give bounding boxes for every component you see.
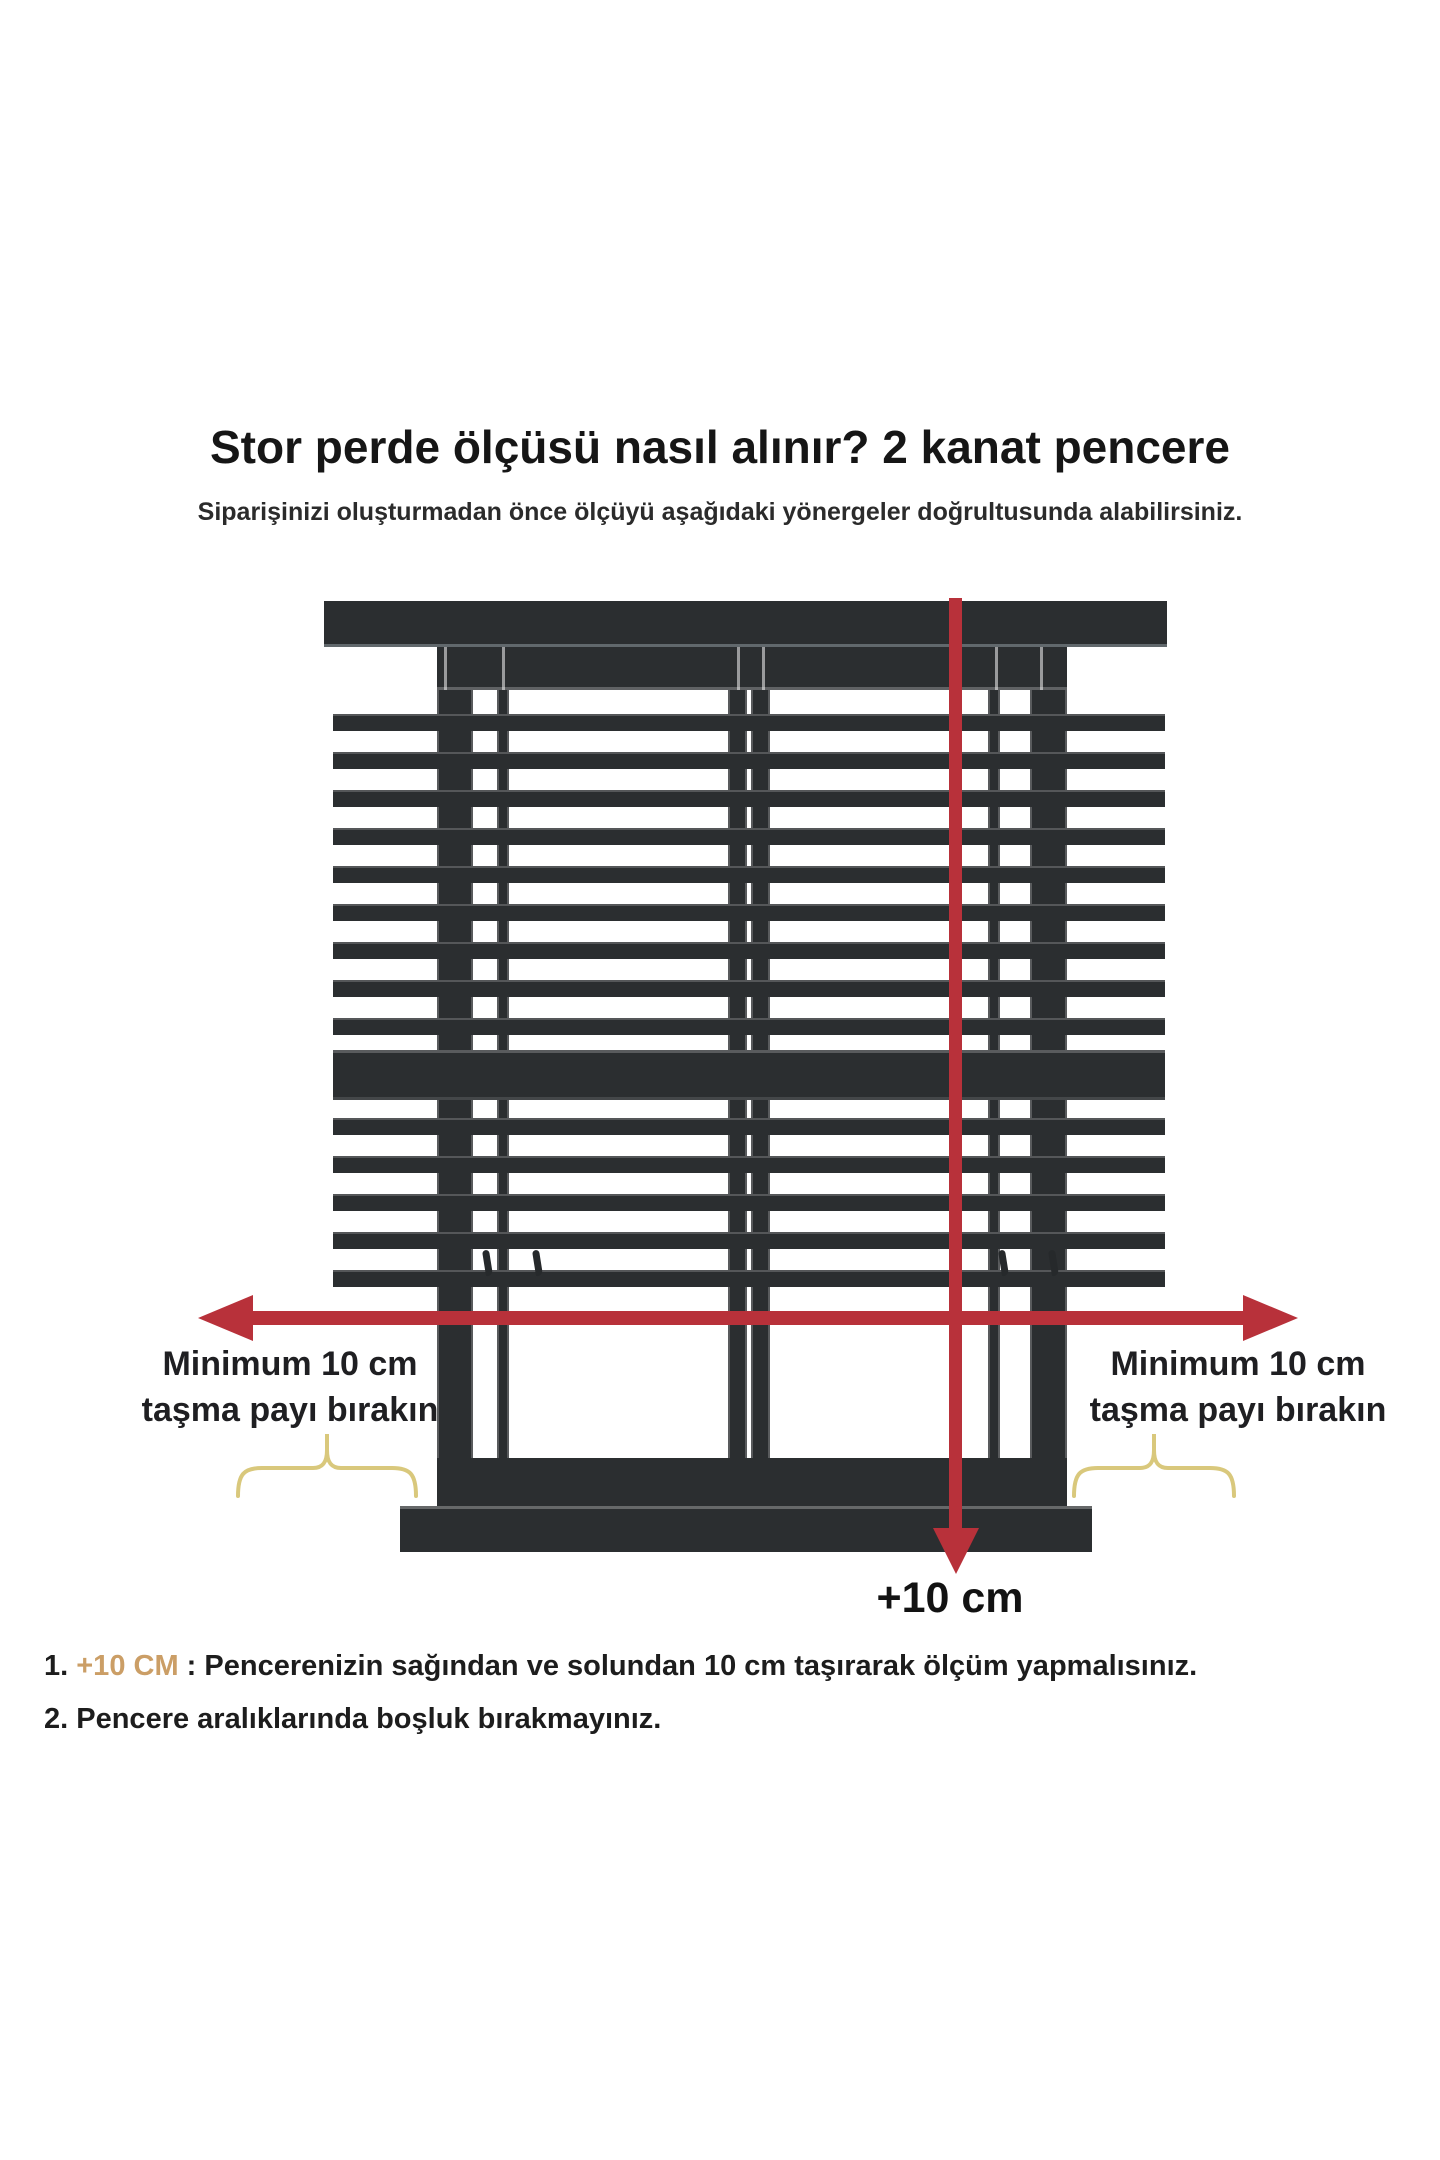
vertical-measure-arrow [949, 598, 962, 1528]
bottom-arrow-label: +10 cm [855, 1574, 1045, 1623]
blind-slat [333, 980, 1165, 997]
left-overhang-label-line2: taşma payı bırakın [115, 1387, 465, 1433]
down-arrowhead-icon [933, 1528, 979, 1574]
right-overhang-label: Minimum 10 cm taşma payı bırakın [1063, 1341, 1413, 1433]
frame-seam [762, 646, 765, 690]
instruction-item-1: 1. +10 CM : Pencerenizin sağından ve sol… [44, 1640, 1414, 1693]
blind-slat [333, 714, 1165, 731]
blind-merged-slat-band [333, 1050, 1165, 1100]
left-overhang-brace-icon [236, 1428, 420, 1500]
left-arrowhead-icon [198, 1295, 253, 1341]
frame-seam [502, 646, 505, 690]
blind-slat [333, 1018, 1165, 1035]
instruction-2-number: 2. [44, 1703, 68, 1735]
blind-slat [333, 1156, 1165, 1173]
window-sill [400, 1506, 1092, 1552]
blind-headrail [324, 601, 1167, 647]
window-top-frame [437, 645, 1067, 690]
page-title: Stor perde ölçüsü nasıl alınır? 2 kanat … [0, 420, 1440, 474]
instruction-1-highlight: +10 CM [76, 1650, 178, 1682]
blind-slat [333, 752, 1165, 769]
instruction-2-text: Pencere aralıklarında boşluk bırakmayını… [76, 1703, 661, 1735]
right-overhang-brace-icon [1072, 1428, 1240, 1500]
blind-slat [333, 904, 1165, 921]
blind-slat [333, 942, 1165, 959]
horizontal-measure-arrow [253, 1311, 1243, 1325]
instructions-list: 1. +10 CM : Pencerenizin sağından ve sol… [44, 1640, 1414, 1746]
blind-slat [333, 828, 1165, 845]
blind-slat [333, 1270, 1165, 1287]
blind-slat [333, 1194, 1165, 1211]
blind-slat [333, 1232, 1165, 1249]
frame-seam [1040, 646, 1043, 690]
blind-slat [333, 866, 1165, 883]
instruction-1-text: : Pencerenizin sağından ve solundan 10 c… [187, 1650, 1198, 1682]
measurement-guide-page: { "header": { "title": "Stor perde ölçüs… [0, 0, 1440, 2160]
blind-slat [333, 1118, 1165, 1135]
blind-slat [333, 790, 1165, 807]
left-overhang-label: Minimum 10 cm taşma payı bırakın [115, 1341, 465, 1433]
window-bottom-rail [437, 1458, 1067, 1506]
right-overhang-label-line1: Minimum 10 cm [1063, 1341, 1413, 1387]
frame-seam [995, 646, 998, 690]
frame-seam [444, 646, 447, 690]
page-subtitle: Siparişinizi oluşturmadan önce ölçüyü aş… [0, 498, 1440, 527]
right-arrowhead-icon [1243, 1295, 1298, 1341]
instruction-item-2: 2. Pencere aralıklarında boşluk bırakmay… [44, 1693, 1414, 1746]
left-overhang-label-line1: Minimum 10 cm [115, 1341, 465, 1387]
right-overhang-label-line2: taşma payı bırakın [1063, 1387, 1413, 1433]
frame-seam [737, 646, 740, 690]
instruction-1-number: 1. [44, 1650, 68, 1682]
